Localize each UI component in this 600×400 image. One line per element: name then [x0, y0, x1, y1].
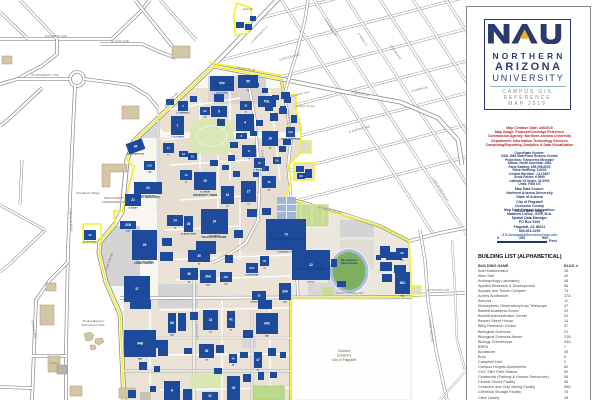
svg-text:W CLAY AVE: W CLAY AVE: [111, 39, 129, 43]
svg-text:94D: 94D: [264, 322, 271, 326]
svg-text:22 HLC: 22 HLC: [307, 282, 315, 284]
svg-text:21: 21: [131, 198, 135, 202]
svg-text:37: 37: [135, 287, 139, 291]
svg-text:S BEULAH BLVD: S BEULAH BLVD: [69, 208, 74, 232]
svg-text:E MCCONNELL DR: E MCCONNELL DR: [337, 291, 365, 295]
svg-text:15 UNION: 15 UNION: [200, 192, 210, 194]
svg-text:W FOREST AVE: W FOREST AVE: [45, 34, 67, 38]
svg-text:24: 24: [213, 220, 217, 224]
svg-text:36: 36: [187, 272, 191, 276]
svg-text:45: 45: [232, 386, 236, 390]
svg-text:41: 41: [229, 318, 233, 322]
svg-text:14: 14: [173, 219, 177, 223]
svg-text:73: 73: [284, 233, 288, 237]
svg-text:96C: 96C: [400, 281, 407, 285]
svg-text:Cemetery: Cemetery: [337, 354, 352, 358]
svg-text:32: 32: [209, 318, 213, 322]
svg-text:55: 55: [246, 80, 250, 84]
svg-text:94: 94: [134, 145, 138, 149]
svg-text:18: 18: [268, 137, 272, 141]
svg-text:31: 31: [208, 394, 212, 398]
svg-text:33A: 33A: [282, 290, 289, 294]
svg-text:92 FRONSKE: 92 FRONSKE: [83, 242, 97, 244]
svg-text:Citizens: Citizens: [338, 349, 350, 353]
svg-text:96C: 96C: [401, 296, 405, 298]
svg-text:68: 68: [170, 321, 174, 325]
svg-text:Max Jamieson: Max Jamieson: [341, 259, 358, 262]
svg-text:W UNIVERSITY AVE: W UNIVERSITY AVE: [31, 73, 59, 77]
svg-text:25: 25: [143, 243, 147, 247]
svg-text:21B: 21B: [126, 231, 130, 233]
svg-text:Track Complex: Track Complex: [340, 262, 358, 265]
svg-text:38: 38: [205, 349, 209, 353]
svg-text:22: 22: [309, 263, 313, 267]
svg-text:1: 1: [177, 124, 179, 128]
svg-text:23: 23: [146, 186, 150, 190]
svg-text:47: 47: [256, 358, 260, 362]
svg-text:21 BILBY: 21 BILBY: [128, 208, 138, 210]
svg-text:21B: 21B: [125, 223, 132, 227]
svg-text:30C: 30C: [224, 284, 228, 286]
svg-text:5: 5: [218, 110, 220, 114]
svg-text:30: 30: [197, 254, 201, 258]
svg-text:PSL: PSL: [264, 100, 270, 104]
svg-text:4: 4: [244, 121, 246, 125]
svg-text:96C: 96C: [400, 260, 404, 262]
svg-text:27: 27: [247, 190, 251, 194]
svg-text:15: 15: [203, 179, 207, 183]
svg-text:City of Flagstaff: City of Flagstaff: [332, 358, 357, 362]
svg-text:16: 16: [226, 193, 230, 197]
svg-text:26: 26: [187, 222, 191, 226]
svg-text:94B: 94B: [137, 342, 144, 346]
svg-text:36A: 36A: [205, 275, 212, 279]
